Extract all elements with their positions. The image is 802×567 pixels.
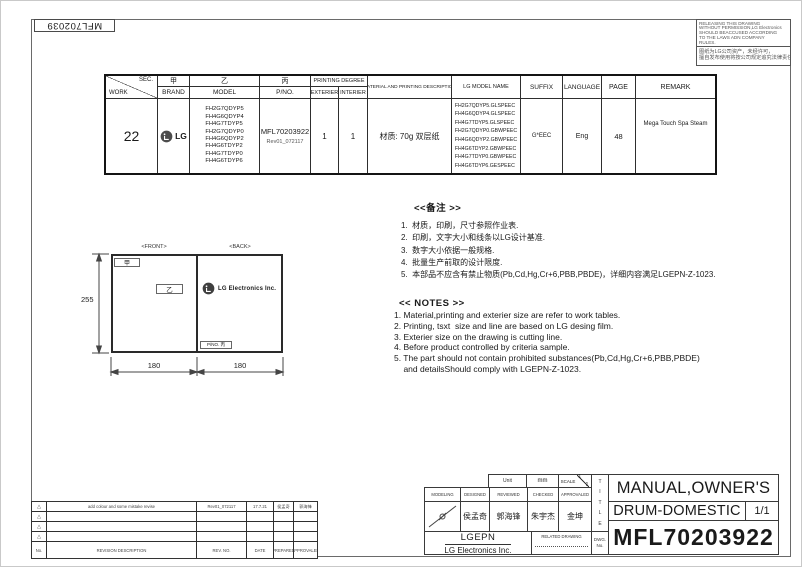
designed-signature: 侯孟奇	[460, 501, 490, 532]
header-page: PAGE	[602, 76, 636, 99]
revision-date	[247, 522, 274, 532]
unit-value-cell: mm	[526, 474, 559, 488]
revision-date	[247, 532, 274, 542]
revision-header-date: DATE	[247, 542, 274, 558]
header-suffix: SUFFIX	[521, 76, 563, 99]
sheet-number: 1/1	[745, 501, 779, 521]
reviewed-label-cell: REVIEWED	[489, 487, 528, 502]
rotated-stamp-box: MFL702039	[34, 19, 115, 32]
sec-work-header-cell: SEC. WORK	[106, 76, 158, 99]
revision-approvaled	[294, 532, 317, 542]
revision-prepared: 侯孟奇	[274, 502, 294, 512]
dwg-no-label-cell: DWG. No.	[591, 531, 609, 555]
revision-rev-no	[197, 522, 247, 532]
approvaled-signature: 金坤	[558, 501, 592, 532]
revision-description	[47, 532, 197, 542]
revision-rev-no: Rev01_072117	[197, 502, 247, 512]
material-value: 材质: 70g 双层纸	[368, 99, 452, 173]
title-vertical-text: T I T L E	[598, 477, 601, 530]
revision-rev-no	[197, 512, 247, 522]
interier-value: 1	[339, 99, 368, 173]
remark-value: Mega Touch Spa Steam	[636, 99, 715, 173]
dim-back-width-label: 180	[197, 361, 283, 370]
header-brand: BRAND	[158, 87, 190, 99]
header-pno: P/NO.	[260, 87, 311, 99]
revision-marker: △	[32, 522, 47, 532]
revision-date	[247, 512, 274, 522]
drawing-number: MFL70203922	[608, 520, 779, 555]
work-value: 22	[106, 99, 158, 173]
revision-header-no: No.	[32, 542, 47, 558]
revision-prepared	[274, 532, 294, 542]
revision-header-description: REVISION DESCRIPTION	[47, 542, 197, 558]
company-cell: LGEPN LG Electronics Inc.	[424, 531, 532, 555]
drawing-sheet: MFL702039 RELEASING THIS DRAWING WITHOUT…	[0, 0, 802, 567]
designed-label-cell: DESIGNED	[460, 487, 490, 502]
notes-zh-lines: 1. 材质，印刷，尺寸参照作业表. 2. 印刷，文字大小和线条以LG设计基准. …	[401, 220, 716, 281]
scale-fraction: 1 1	[577, 475, 589, 487]
revision-approvaled: 郭海锋	[294, 502, 317, 512]
work-label: WORK	[109, 90, 128, 96]
header-interier: INTERIER	[339, 87, 368, 99]
scale-cell: SCALE 1 1	[558, 474, 592, 488]
approvaled-label-cell: APPROVALED	[558, 487, 592, 502]
brand-cell: LG	[158, 99, 190, 173]
title-line1: MANUAL,OWNER'S	[608, 474, 779, 502]
notes-zh-title: <<备注 >>	[414, 200, 461, 214]
header-printing-degree: PRINTING DEGREE	[311, 76, 368, 87]
rotated-stamp-text: MFL702039	[35, 20, 114, 31]
revision-rev-no	[197, 532, 247, 542]
dim-height-label: 255	[81, 295, 94, 304]
revision-table: △ add colour and some mistake revise Rev…	[31, 501, 318, 559]
pno-rev: Rev01_072117	[267, 139, 304, 145]
header-model: MODEL	[190, 87, 260, 99]
scale-label: SCALE	[561, 479, 576, 484]
revision-description	[47, 512, 197, 522]
pno-value: MFL70203922	[261, 127, 309, 136]
release-notice-en: RELEASING THIS DRAWING WITHOUT PERMISSIO…	[697, 20, 790, 47]
modeling-label-cell: MODELING	[424, 487, 461, 502]
brand-text: LG	[175, 131, 187, 141]
checked-signature: 朱宇杰	[527, 501, 559, 532]
sec-label: SEC.	[139, 77, 153, 83]
company-full: LG Electronics Inc.	[444, 546, 511, 555]
revision-prepared	[274, 522, 294, 532]
revision-header-prepared: PREPARED	[274, 542, 294, 558]
header-exterier: EXTERIER	[311, 87, 339, 99]
reviewed-signature: 郭海锋	[489, 501, 528, 532]
dwg-no-label: DWG. No.	[594, 537, 606, 549]
header-jia: 甲	[158, 76, 190, 87]
header-bing: 丙	[260, 76, 311, 87]
language-value: Eng	[563, 99, 602, 173]
revision-header-rev-no: REV. NO.	[197, 542, 247, 558]
revision-description: add colour and some mistake revise	[47, 502, 197, 512]
revision-marker: △	[32, 532, 47, 542]
lg-logo-icon	[160, 130, 173, 143]
related-drawing-cell: RELATED DRAWING	[531, 531, 592, 555]
modeling-slash-icon	[425, 502, 460, 531]
release-notice-zh: 图纸为LG公司资产，未经许可， 擅自发布使用将按公司规定追究法律责任	[697, 47, 790, 63]
suffix-value: G*EEC	[521, 99, 563, 173]
header-material: MATERIAL AND PRINTING DESCRIPTION	[368, 76, 452, 99]
header-remark: REMARK	[636, 76, 715, 99]
lg-model-name-list: FH2G7QDYP5.GLSPEEC FH4G6QDYP4.GLSPEEC FH…	[452, 99, 521, 173]
spec-table: SEC. WORK 甲 乙 丙 PRINTING DEGREE MATERIAL…	[104, 74, 717, 175]
header-lg-model-name: LG MODEL NAME	[452, 76, 521, 99]
dim-front-width-label: 180	[111, 361, 197, 370]
revision-header-approvaled: APPROVALED	[294, 542, 317, 558]
header-yi: 乙	[190, 76, 260, 87]
title-vertical-cell: T I T L E	[591, 474, 609, 532]
revision-description	[47, 522, 197, 532]
scale-numerator: 1	[578, 474, 581, 480]
revision-date: 17.7.21	[247, 502, 274, 512]
company-short: LGEPN	[461, 532, 496, 543]
release-notice-box: RELEASING THIS DRAWING WITHOUT PERMISSIO…	[696, 19, 791, 66]
related-drawing-dotted-line	[535, 546, 588, 547]
revision-approvaled	[294, 522, 317, 532]
title-line2: DRUM-DOMESTIC	[608, 501, 746, 521]
modeling-signature-cell	[424, 501, 461, 532]
notes-en-title: << NOTES >>	[399, 298, 465, 309]
revision-approvaled	[294, 512, 317, 522]
revision-marker: △	[32, 512, 47, 522]
exterier-value: 1	[311, 99, 339, 173]
model-list: FH2G7QDYP5 FH4G6QDYP4 FH4G7TDYP5 FH2G7QD…	[190, 99, 260, 173]
pno-cell: MFL70203922 Rev01_072117	[260, 99, 311, 173]
unit-label-cell: Unit	[488, 474, 527, 488]
notes-en-lines: 1. Material,printing and exterier size a…	[394, 310, 700, 375]
company-divider	[445, 544, 511, 545]
page-value: 48	[602, 99, 636, 173]
revision-marker: △	[32, 502, 47, 512]
header-language: LANGUAGE	[563, 76, 602, 99]
related-drawing-label: RELATED DRAWING	[532, 532, 591, 539]
checked-label-cell: CHECKED	[527, 487, 559, 502]
revision-prepared	[274, 512, 294, 522]
